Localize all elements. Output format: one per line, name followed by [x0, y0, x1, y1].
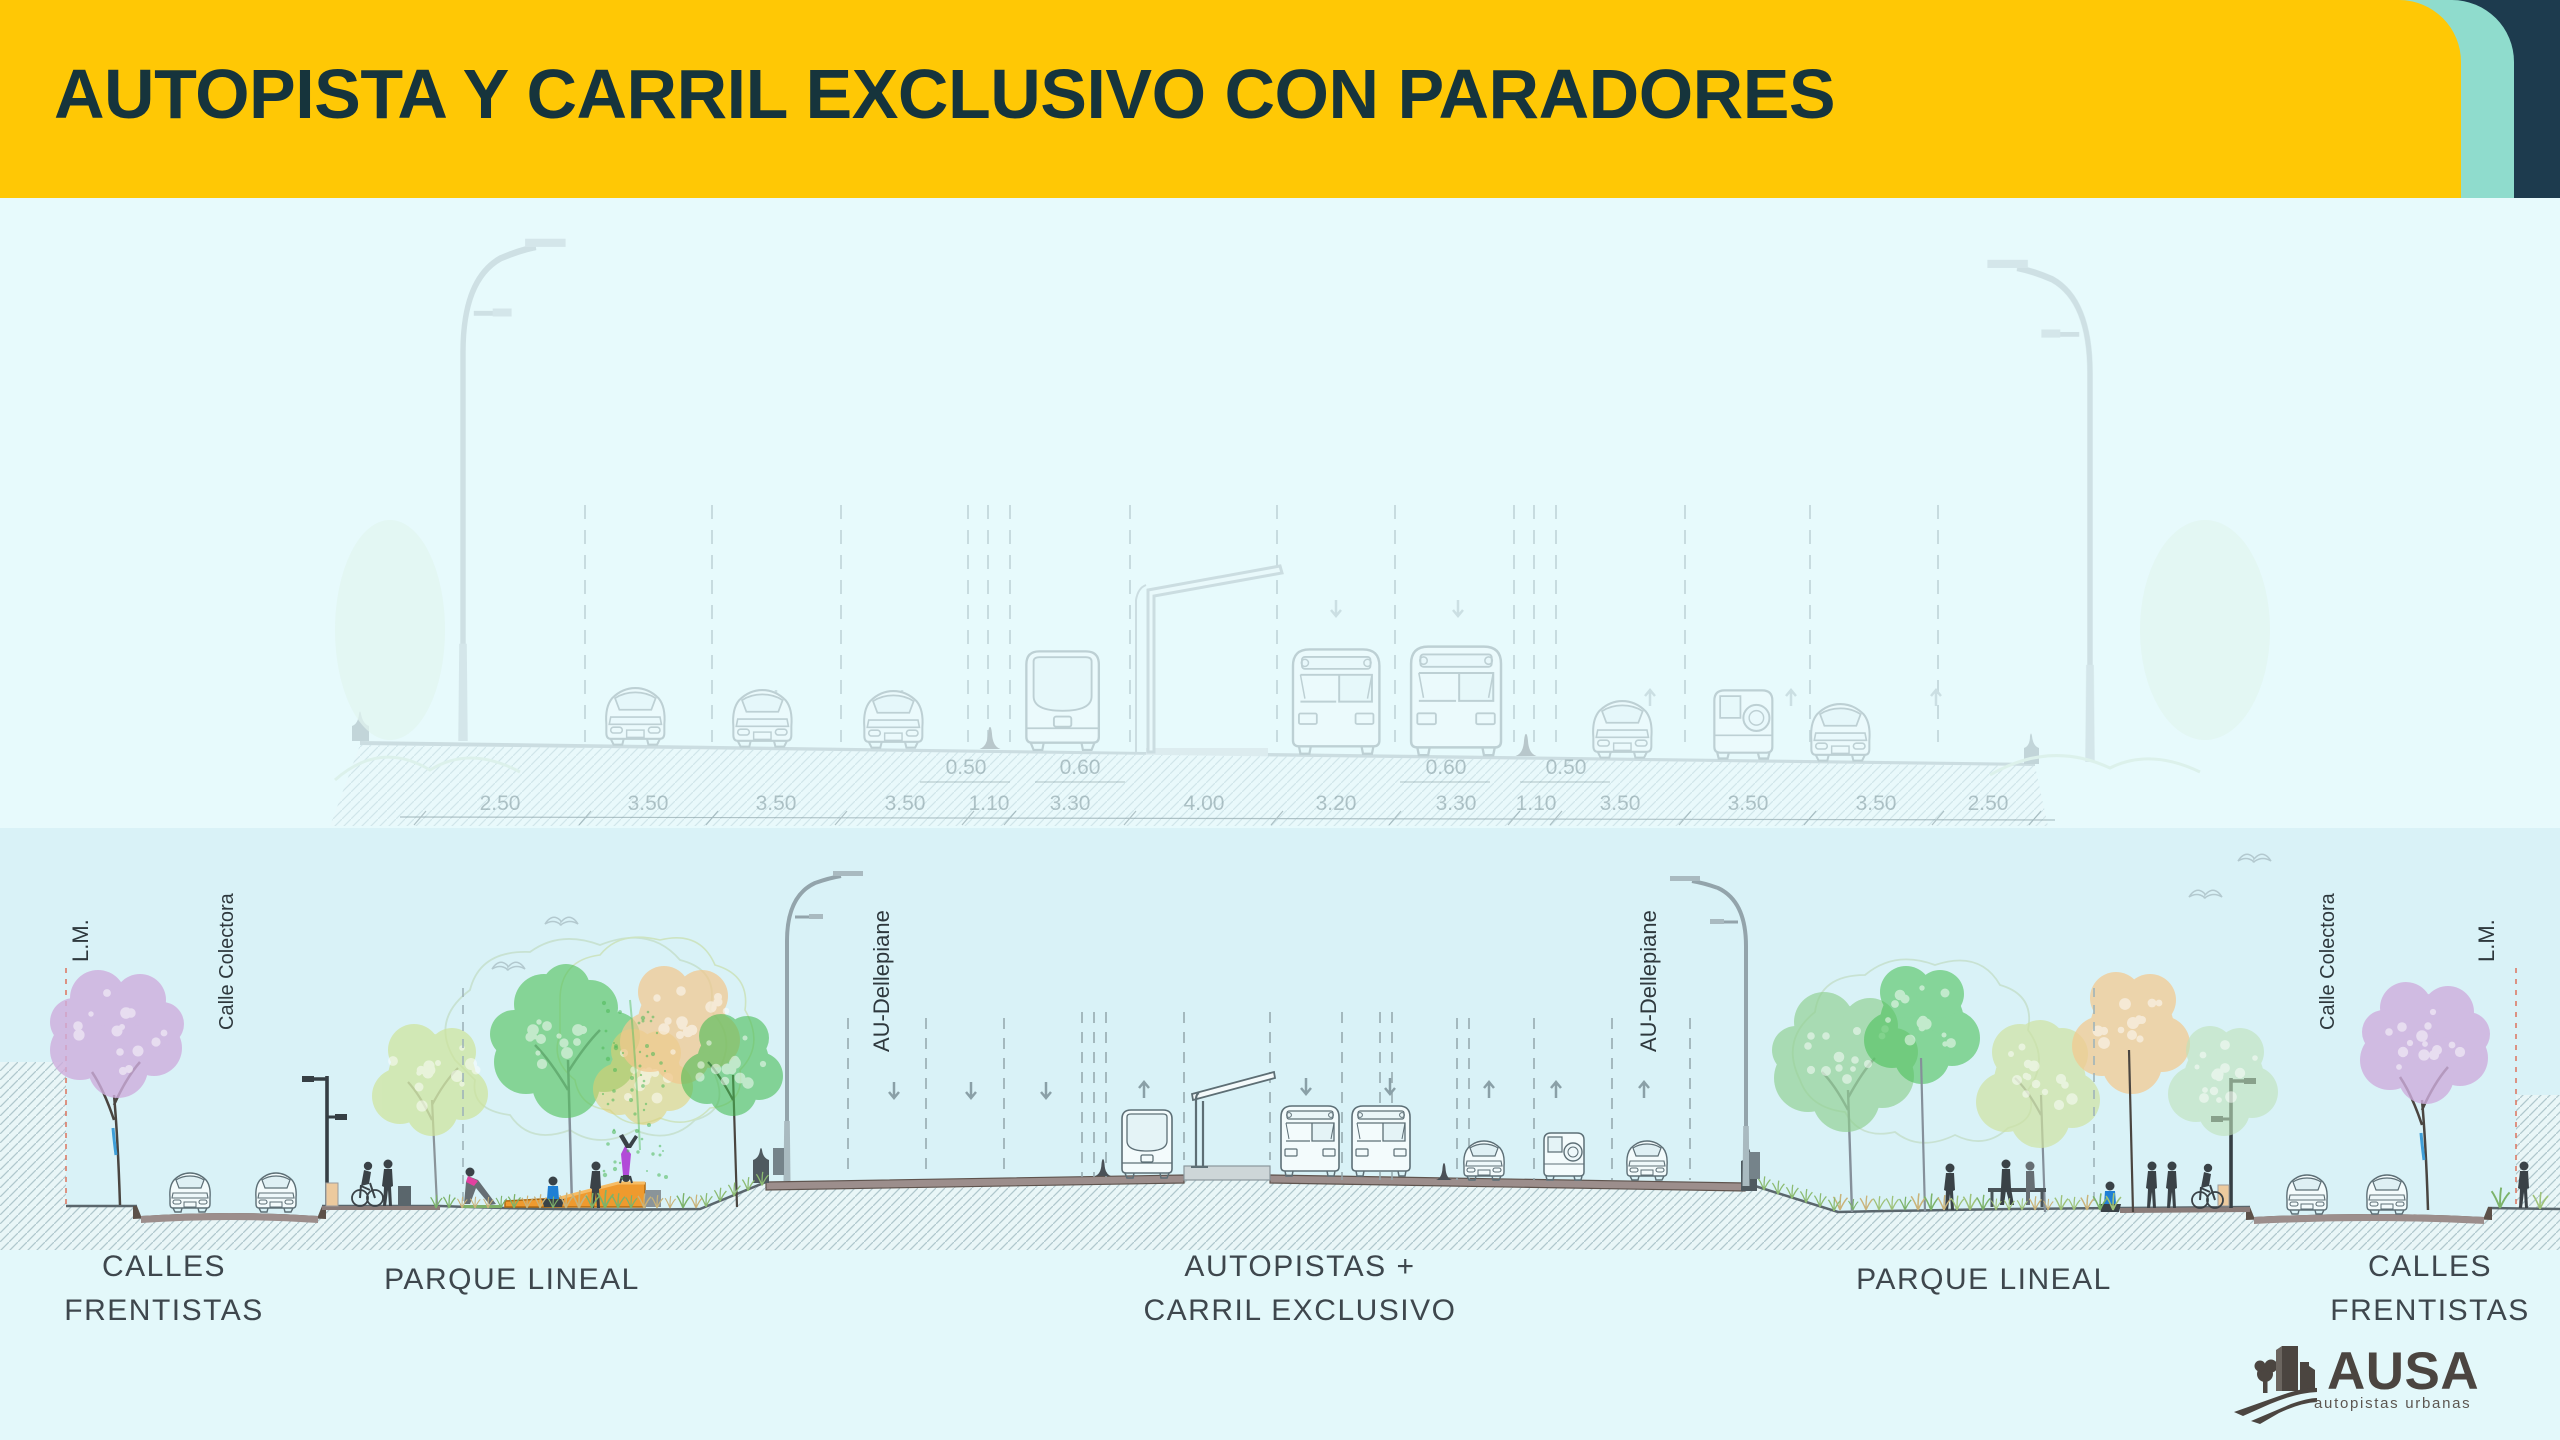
svg-text:autopistas urbanas: autopistas urbanas	[2314, 1395, 2471, 1412]
svg-text:L.M.: L.M.	[2474, 919, 2499, 962]
svg-text:3.50: 3.50	[885, 792, 926, 815]
svg-text:0.60: 0.60	[1426, 756, 1467, 779]
svg-text:AU-Dellepiane: AU-Dellepiane	[869, 910, 894, 1052]
svg-text:3.50: 3.50	[756, 792, 797, 815]
svg-text:1.10: 1.10	[1516, 792, 1557, 815]
svg-text:2.50: 2.50	[480, 792, 521, 815]
svg-text:0.50: 0.50	[1546, 756, 1587, 779]
svg-text:3.50: 3.50	[628, 792, 669, 815]
svg-text:3.50: 3.50	[1728, 792, 1769, 815]
svg-text:3.50: 3.50	[1856, 792, 1897, 815]
svg-text:1.10: 1.10	[969, 792, 1010, 815]
svg-text:3.50: 3.50	[1600, 792, 1641, 815]
svg-text:Calle Colectora: Calle Colectora	[216, 892, 238, 1030]
svg-text:4.00: 4.00	[1184, 792, 1225, 815]
svg-text:L.M.: L.M.	[68, 919, 93, 962]
svg-text:AU-Dellepiane: AU-Dellepiane	[1636, 910, 1661, 1052]
svg-text:AUSA: AUSA	[2327, 1342, 2479, 1401]
svg-text:0.50: 0.50	[946, 756, 987, 779]
svg-text:3.30: 3.30	[1436, 792, 1477, 815]
svg-text:3.20: 3.20	[1316, 792, 1357, 815]
svg-text:2.50: 2.50	[1968, 792, 2009, 815]
svg-text:3.30: 3.30	[1050, 792, 1091, 815]
svg-text:Calle Colectora: Calle Colectora	[2317, 892, 2339, 1030]
svg-text:0.60: 0.60	[1060, 756, 1101, 779]
